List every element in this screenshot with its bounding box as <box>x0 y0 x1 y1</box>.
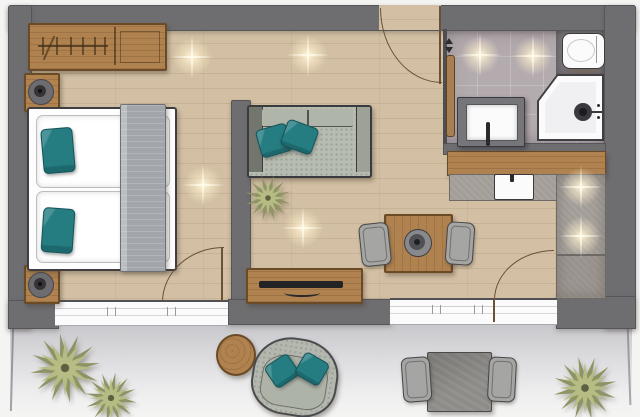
dining-chair-right <box>445 221 476 266</box>
window-living <box>390 298 557 325</box>
kitchen-faucet-icon <box>510 174 514 182</box>
patio-door-leaf <box>493 298 495 322</box>
bed-pillow-teal <box>40 127 76 175</box>
wall-east <box>604 5 636 329</box>
shower-control-dot <box>597 104 600 107</box>
kitchen-bar-counter <box>447 151 606 176</box>
entrance-door-leaf <box>439 6 441 84</box>
toilet-icon <box>562 33 605 69</box>
terrace-side-table <box>216 334 256 376</box>
decorative-bowl-icon <box>404 229 432 257</box>
shower-handle <box>591 111 602 113</box>
vanity-counter <box>457 97 525 147</box>
kitchen-counter-right <box>556 174 606 299</box>
slide-arrow-down-icon <box>445 47 453 53</box>
bedroom-door-leaf <box>221 247 223 302</box>
bed-pillow-teal <box>40 207 75 254</box>
wardrobe <box>28 23 167 71</box>
table-lamp-icon <box>28 79 54 105</box>
sliding-door <box>446 55 455 137</box>
kitchen-sink <box>494 174 534 200</box>
sideboard <box>246 268 363 304</box>
blanket-runner <box>120 104 166 272</box>
outdoor-chair-right <box>487 356 517 402</box>
wall-south-right <box>556 296 636 329</box>
plant-icon <box>245 175 291 221</box>
floor-plan <box>0 0 640 417</box>
sofa-cushion-split <box>307 110 309 125</box>
window-bedroom <box>55 300 228 326</box>
basin-faucet-icon <box>486 122 490 146</box>
wall-south-left <box>8 300 59 329</box>
dining-chair-left <box>358 222 392 268</box>
table-lamp-icon <box>28 272 54 298</box>
terrace-plant-icon <box>85 372 137 417</box>
terrace-plant-icon <box>553 356 617 417</box>
outdoor-table <box>427 352 492 412</box>
washbasin-icon <box>466 104 518 141</box>
shower-drain-icon <box>574 103 592 121</box>
tv-stand <box>284 289 320 297</box>
tv-icon <box>259 281 343 288</box>
slide-arrow-up-icon <box>445 38 453 44</box>
outdoor-chair-left <box>400 356 432 403</box>
shower-control-dot <box>597 116 600 119</box>
sofa-armrest <box>356 107 370 172</box>
